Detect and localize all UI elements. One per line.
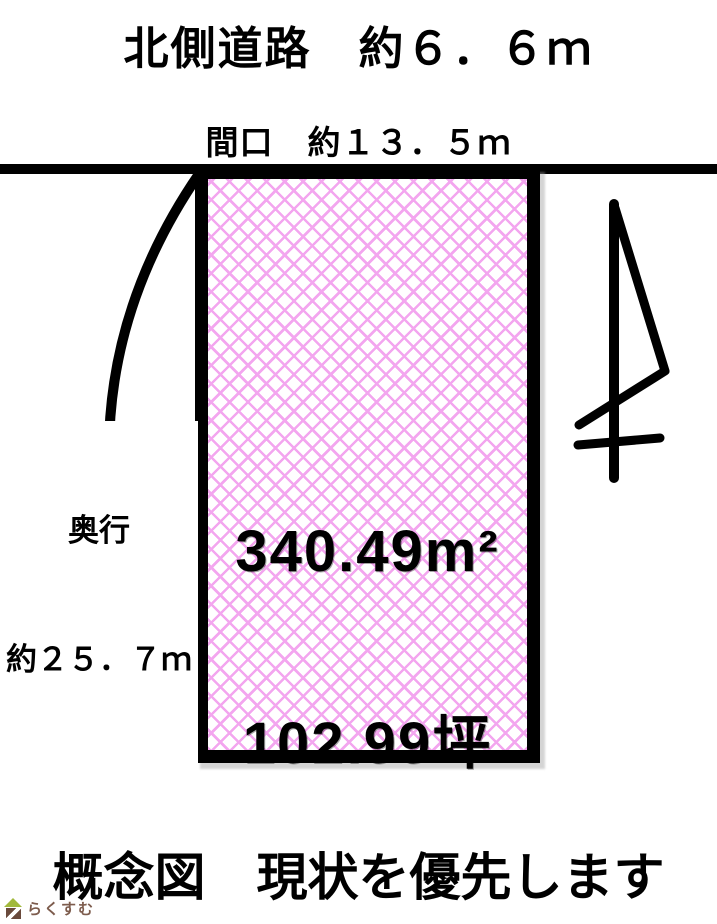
site-logo: らくすむ: [4, 896, 95, 920]
depth-label-title: 奥行: [0, 509, 198, 552]
site-logo-text: らくすむ: [27, 898, 95, 919]
land-plot-diagram: 北側道路 約６．６ｍ 間口 約１３．５ｍ 340.49m² 102.99坪 奥行…: [0, 0, 717, 924]
north-arrow-icon: [578, 204, 665, 478]
house-roof-icon: [4, 898, 22, 907]
house-body-icon: [6, 908, 21, 919]
depth-label: 奥行 約２５．７ｍ: [0, 421, 198, 771]
house-icon: [4, 898, 22, 919]
depth-label-value: 約２５．７ｍ: [0, 638, 198, 681]
